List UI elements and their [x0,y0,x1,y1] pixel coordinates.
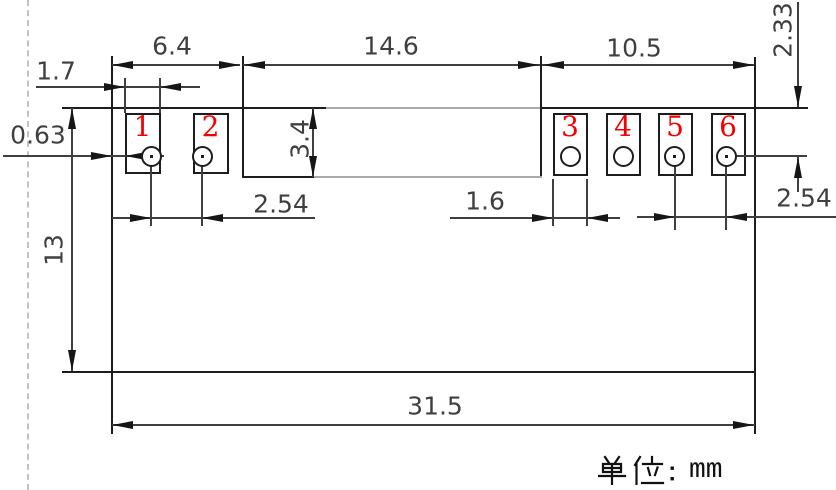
arrow-1-6-b [587,214,608,222]
body-right-edge [754,57,756,434]
dim-line-31-5 [112,424,755,426]
technical-drawing: 1 2 3 4 5 6 6.4 14.6 10.5 1.7 0.63 3.4 1… [0,0,836,490]
pad-4-number: 4 [614,113,632,141]
recess-bottom-edge-gray [314,176,542,178]
pad-5-number: 5 [666,113,684,141]
body-left-edge [111,56,113,434]
arrow-1-7-left [104,83,125,91]
dim-text-13: 13 [42,234,67,266]
arrow-14-6-right [518,61,539,69]
dim-line-13 [71,108,73,371]
arrow-2-33-bottom [794,157,802,178]
pad-2-number: 2 [202,113,220,141]
arrow-10-5-left [543,61,564,69]
arrow-3-4-bottom [309,156,317,177]
arrow-2-54-left-b [202,214,223,222]
unit-label-mm: mm [689,457,723,485]
hole-3 [560,146,581,167]
arrow-2-33-top [794,86,802,107]
recess-left-wall [242,56,244,177]
hole-4 [613,146,634,167]
recess-right-wall [540,56,542,177]
arrow-14-6-left [244,61,265,69]
arrow-1-7-right [160,83,181,91]
recess-bottom-edge [242,176,314,178]
dim-text-31-5: 31.5 [407,394,463,419]
dim-line-14-6 [243,64,540,66]
unit-label: 单位： mm [598,454,723,485]
arrow-31-5-left [112,421,133,429]
arrow-0-63-left [91,152,112,160]
arrow-6-4-left [112,61,133,69]
arrow-2-54-right-b [726,213,747,221]
dim-text-2-54-left: 2.54 [253,192,309,217]
arrow-6-4-right [219,61,240,69]
hole-2-center-dot [201,155,204,158]
unit-label-cjk-drawing [598,454,680,485]
arrow-31-5-right [733,421,754,429]
dim-text-14-6: 14.6 [363,34,419,59]
body-top-edge-left [62,107,326,109]
hole-6-center-dot [725,155,728,158]
hole-5-center-dot [673,155,676,158]
dim-line-10-5 [542,64,754,66]
pad-1-number: 1 [134,113,152,141]
dim-text-1-6: 1.6 [465,189,505,214]
arrow-2-54-left-a [130,214,151,222]
dim-text-0-63: 0.63 [10,123,66,148]
dim-text-6-4: 6.4 [152,34,192,59]
dim-text-3-4: 3.4 [288,119,313,159]
pad-6-number: 6 [719,113,737,141]
arrow-2-54-right-a [654,213,675,221]
arrow-13-top [68,108,76,129]
dim-text-2-33: 2.33 [771,2,796,58]
dashed-reference-line [27,0,29,490]
arrow-1-6-a [532,214,553,222]
arrow-13-bottom [68,350,76,371]
hole-1-center-dot [150,155,153,158]
body-bottom-edge [62,371,756,373]
dim-text-1-7: 1.7 [36,59,76,84]
pad-3-number: 3 [561,113,579,141]
dim-text-2-54-right: 2.54 [776,186,832,211]
recess-top-edge-gray [326,107,540,109]
arrow-10-5-right [733,61,754,69]
dim-text-10-5: 10.5 [606,36,662,61]
